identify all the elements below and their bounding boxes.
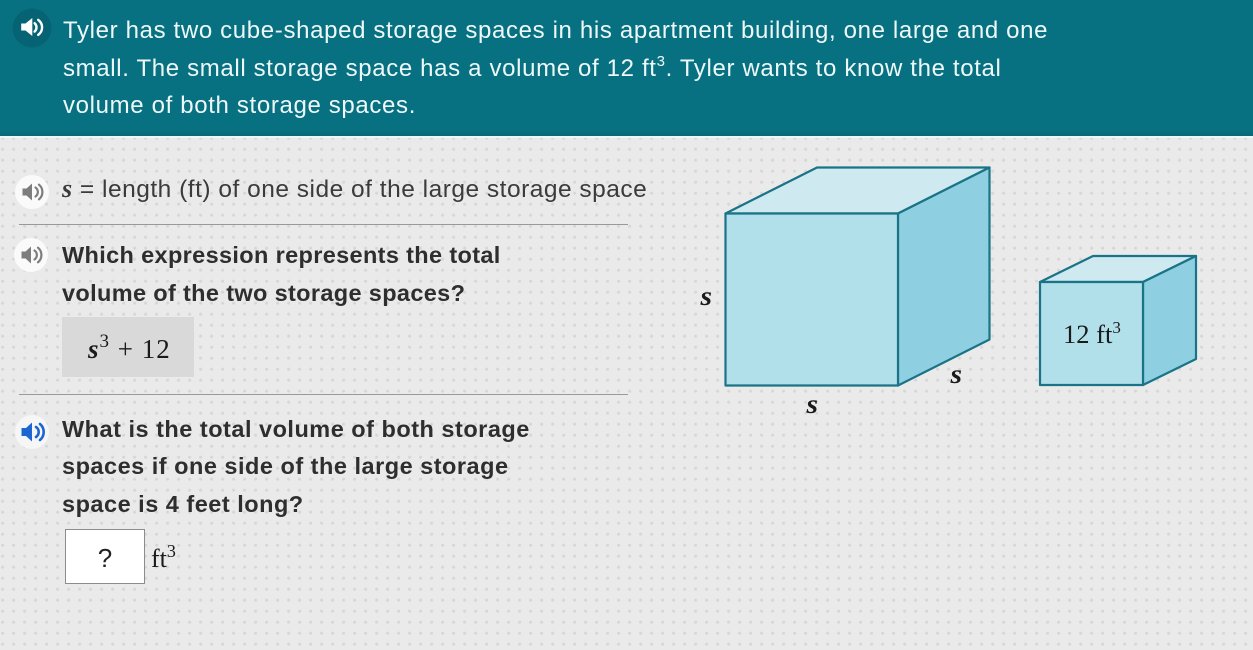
svg-text:s: s xyxy=(805,389,818,419)
svg-text:12 ft3: 12 ft3 xyxy=(1063,318,1121,349)
svg-text:s: s xyxy=(699,281,712,311)
svg-text:s: s xyxy=(949,359,962,389)
